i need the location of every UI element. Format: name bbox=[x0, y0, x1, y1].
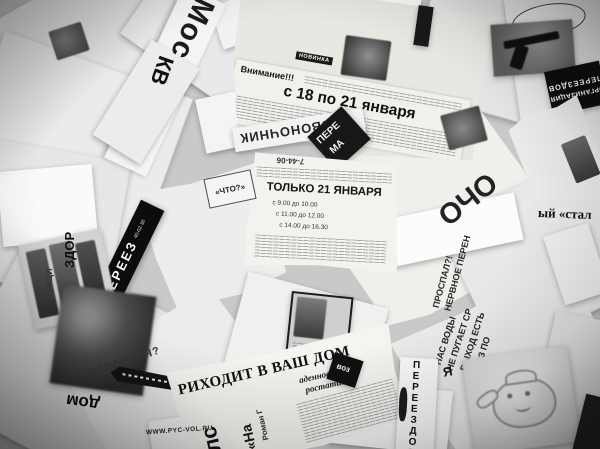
movers-vertical-label: ПЕРЕЕЗДОВ bbox=[406, 360, 422, 449]
tolko-scrap: 7-44-06 ТОЛЬКО 21 ЯНВАРЯ с 9.00 до 10.00… bbox=[243, 152, 403, 274]
building-photo bbox=[293, 297, 327, 340]
news-photo bbox=[340, 35, 391, 81]
pereez-phone: 40-02-38 bbox=[133, 219, 147, 240]
stal-headline: ый «стал bbox=[538, 205, 592, 223]
schedule-3: с 14.00 до 16.30 bbox=[279, 222, 328, 232]
fine-print bbox=[254, 234, 387, 263]
schedule-1: с 9.00 до 10.00 bbox=[272, 199, 317, 208]
gun-barrel bbox=[503, 31, 559, 50]
roman-byline: Роман Г bbox=[255, 408, 271, 441]
voz-label: воз bbox=[336, 362, 352, 375]
teapot-sketch bbox=[462, 345, 580, 449]
schedule-2: с 11.00 до 12.00 bbox=[276, 211, 324, 221]
atsii-fragment: АЦИ bbox=[44, 268, 54, 288]
phone-inverted: 7-44-06 bbox=[276, 156, 304, 166]
na-quote: «На bbox=[238, 423, 259, 449]
only-date-headline: ТОЛЬКО 21 ЯНВАРЯ bbox=[247, 180, 401, 200]
zdor-headline: ЗДОР bbox=[62, 232, 77, 268]
thumb-photo bbox=[561, 135, 600, 184]
chto-label: «ЧТО?» bbox=[214, 181, 246, 196]
ink-blob bbox=[398, 387, 408, 421]
kv-headline: КВ bbox=[144, 52, 178, 88]
movers-vertical-strip: ПЕРЕЕЗДОВ bbox=[396, 357, 439, 449]
novinka-tag: НОВИНКА bbox=[295, 51, 333, 65]
ma-label: МА bbox=[328, 138, 347, 157]
newspaper-collage-photo: Москва КВ НОВИНКА Внимание!!! с 18 по 21… bbox=[0, 0, 600, 449]
